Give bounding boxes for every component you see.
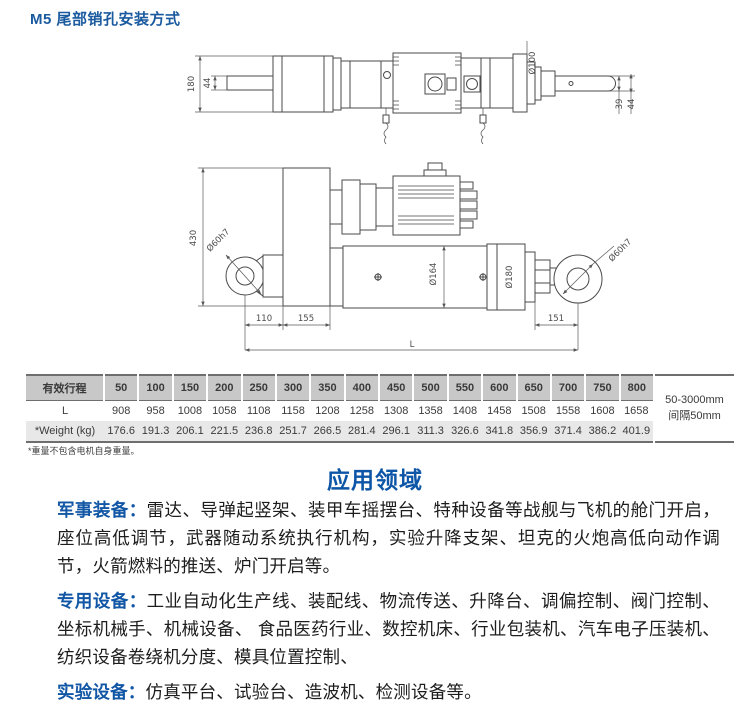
actuator-top-view-outline [227, 53, 616, 144]
table-cell: 1058 [207, 401, 241, 422]
table-cell: 1158 [276, 401, 310, 422]
application-category-label: 专用设备： [57, 591, 147, 611]
dim-label-155: 155 [298, 314, 314, 324]
table-cell: 50 [104, 375, 138, 401]
application-category-label: 实验设备： [57, 682, 146, 702]
dim-label-110: 110 [256, 314, 272, 324]
table-cell: 311.3 [413, 421, 447, 442]
table-cell: 221.5 [207, 421, 241, 442]
table-cell: 700 [551, 375, 585, 401]
table-cell: 191.3 [138, 421, 172, 442]
table-cell: 250 [242, 375, 276, 401]
table-footnote: *重量不包含电机自身重量。 [28, 444, 140, 457]
table-cell: 1458 [482, 401, 516, 422]
dim-label-151: 151 [548, 314, 564, 324]
dim-label-430: 430 [189, 230, 199, 246]
side-view-drawing: 430 Ø60h7 Ø164 Ø180 Ø60h7 110 155 151 [182, 160, 657, 364]
table-cell: 908 [104, 401, 138, 422]
table-cell: 200 [207, 375, 241, 401]
dim-label-d60h7-right: Ø60h7 [606, 236, 634, 264]
dim-label-39: 39 [615, 99, 625, 110]
dim-label-d180: Ø180 [504, 266, 515, 289]
spec-table-body: 有效行程501001502002503003504004505005506006… [26, 375, 734, 442]
table-cell: 206.1 [173, 421, 207, 442]
actuator-side-view-outline [226, 163, 602, 310]
table-cell: 1408 [448, 401, 482, 422]
table-cell: 326.6 [448, 421, 482, 442]
application-item: 军事装备：雷达、导弹起竖架、装甲车摇摆台、特种设备等战舰与飞机的舱门开启，座位高… [57, 496, 720, 580]
table-row: *Weight (kg)176.6191.3206.1221.5236.8251… [26, 421, 734, 442]
table-cell: 550 [448, 375, 482, 401]
table-cell: 100 [138, 375, 172, 401]
dim-label-d60h7-left: Ø60h7 [204, 226, 232, 254]
dim-label-d164: Ø164 [428, 263, 439, 286]
applications-list: 军事装备：雷达、导弹起竖架、装甲车摇摆台、特种设备等战舰与飞机的舱门开启，座位高… [57, 496, 720, 711]
dim-label-44-left: 44 [203, 78, 213, 89]
page-title: M5 尾部销孔安装方式 [30, 8, 181, 29]
top-view-drawing: 180 44 Ø100 39 44 [185, 38, 645, 162]
table-cell: 500 [413, 375, 447, 401]
table-cell: 300 [276, 375, 310, 401]
table-cell: 341.8 [482, 421, 516, 442]
row-label: *Weight (kg) [26, 421, 104, 442]
application-category-text: 雷达、导弹起竖架、装甲车摇摆台、特种设备等战舰与飞机的舱门开启，座位高低调节，武… [57, 500, 720, 576]
table-cell: 750 [585, 375, 619, 401]
table-cell: 1258 [345, 401, 379, 422]
table-cell: 296.1 [379, 421, 413, 442]
table-cell: 400 [345, 375, 379, 401]
application-category-label: 军事装备： [57, 500, 147, 520]
table-cell: 371.4 [551, 421, 585, 442]
table-cell: 1008 [173, 401, 207, 422]
row-label: 有效行程 [26, 375, 104, 401]
table-cell: 1608 [585, 401, 619, 422]
table-cell: 251.7 [276, 421, 310, 442]
table-cell: 356.9 [517, 421, 551, 442]
table-cell: 1308 [379, 401, 413, 422]
stroke-range-note: 50-3000mm间隔50mm [654, 375, 734, 442]
application-category-text: 仿真平台、试验台、造波机、检测设备等。 [146, 682, 482, 702]
applications-title: 应用领域 [0, 461, 750, 495]
table-cell: 1358 [413, 401, 447, 422]
table-cell: 281.4 [345, 421, 379, 442]
table-cell: 450 [379, 375, 413, 401]
table-cell: 176.6 [104, 421, 138, 442]
dim-label-44-right: 44 [627, 99, 637, 110]
dim-label-L: L [410, 340, 415, 350]
application-item: 实验设备：仿真平台、试验台、造波机、检测设备等。 [57, 678, 720, 706]
table-cell: 236.8 [242, 421, 276, 442]
application-category-text: 工业自动化生产线、装配线、物流传送、升降台、调偏控制、阀门控制、坐标机械手、机械… [57, 591, 720, 667]
table-cell: 1658 [620, 401, 654, 422]
row-label: L [26, 401, 104, 422]
table-cell: 1558 [551, 401, 585, 422]
spec-table-wrap: 有效行程501001502002503003504004505005506006… [26, 374, 734, 443]
table-cell: 1208 [310, 401, 344, 422]
dim-label-180: 180 [187, 76, 197, 92]
table-cell: 350 [310, 375, 344, 401]
spec-table: 有效行程501001502002503003504004505005506006… [26, 374, 734, 443]
table-cell: 958 [138, 401, 172, 422]
table-cell: 266.5 [310, 421, 344, 442]
table-row: 有效行程501001502002503003504004505005506006… [26, 375, 734, 401]
table-cell: 150 [173, 375, 207, 401]
dim-label-d100: Ø100 [527, 52, 538, 75]
table-cell: 386.2 [585, 421, 619, 442]
table-cell: 401.9 [620, 421, 654, 442]
table-cell: 600 [482, 375, 516, 401]
table-row: L908958100810581108115812081258130813581… [26, 401, 734, 422]
table-cell: 1508 [517, 401, 551, 422]
table-cell: 1108 [242, 401, 276, 422]
table-cell: 800 [620, 375, 654, 401]
application-item: 专用设备：工业自动化生产线、装配线、物流传送、升降台、调偏控制、阀门控制、坐标机… [57, 587, 720, 671]
table-cell: 650 [517, 375, 551, 401]
datasheet-page: M5 尾部销孔安装方式 [0, 0, 750, 711]
